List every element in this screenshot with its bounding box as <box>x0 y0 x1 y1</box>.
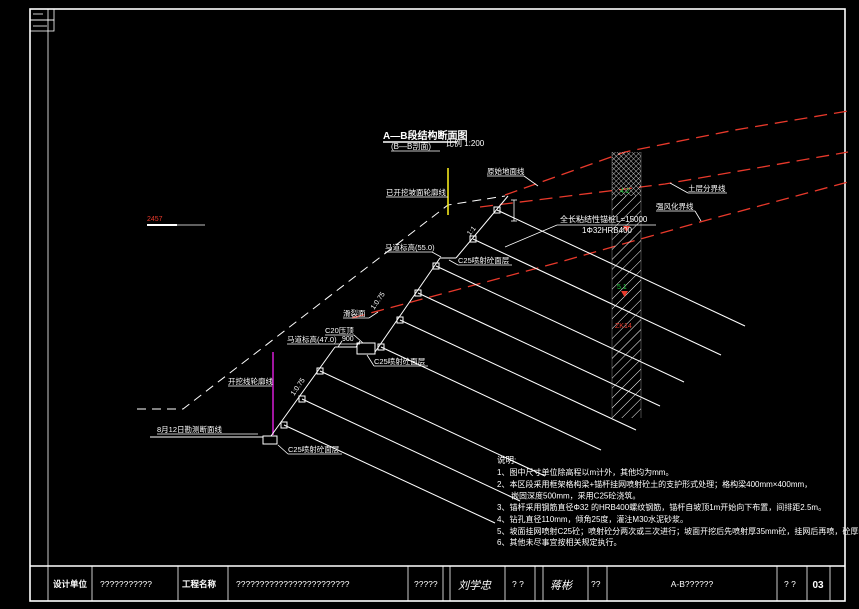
note-line: 5、坡面挂网喷射C25砼；喷射砼分两次或三次进行；坡面开挖后先喷射厚35mm砼，… <box>497 526 859 536</box>
drawing-title-cell: A-B?????? <box>671 579 714 589</box>
shotcrete-label-3: C25喷射砼面层 <box>288 444 340 454</box>
slip-surface-label: 滑裂面 <box>343 308 366 318</box>
survey-line-label: 8月12日勘测断面线 <box>157 424 223 434</box>
borehole-layer-mid-label: 5.1 <box>617 284 627 291</box>
excavation-line-label: 开挖线轮廓线 <box>228 376 273 386</box>
borehole-column: 4.2 5.1 ZK14 <box>612 152 641 418</box>
note-line: 1、图中尺寸单位除高程以m计外，其他均为mm。 <box>497 467 673 477</box>
sheet-number: 03 <box>812 580 824 591</box>
project-name-label: 工程名称 <box>182 579 217 589</box>
drawing-background <box>0 0 859 609</box>
c20-cap-label: C20压顶 <box>325 326 354 335</box>
dim-900-label: 900 <box>342 336 354 343</box>
check-cell-1: ? ? <box>512 579 524 589</box>
excavated-outline-label: 已开挖坡面轮廓线 <box>386 187 446 197</box>
berm-47-label: 马道标高(47.0) <box>287 334 337 344</box>
borehole-id-label: ZK14 <box>615 323 632 330</box>
notes-heading: 说明: <box>497 455 516 465</box>
shotcrete-label-1: C25喷射砼面层 <box>458 255 510 265</box>
anchor-spec-line2: 1Φ32HRB400 <box>582 226 633 235</box>
engineering-drawing: A—B段结构断面图 (B—B剖面) 比例 1:200 4.2 5.1 ZK14 <box>0 0 859 609</box>
soil-boundary-label: 土层分界线 <box>688 183 726 193</box>
check-cell-3: ? ? <box>784 579 796 589</box>
weathered-boundary-label: 强风化界线 <box>656 201 694 211</box>
scale-text: 比例 1:200 <box>446 138 485 148</box>
borehole-layer-top-label: 4.2 <box>620 188 630 195</box>
note-line: 2、本区段采用框架格构梁+锚杆挂网喷射砼土的支护形式处理；格构梁400mm×40… <box>497 479 812 489</box>
design-unit-value: ??????????? <box>100 579 152 589</box>
view-subtitle-text: (B—B剖面) <box>391 141 431 151</box>
check-cell-2: ?? <box>591 579 601 589</box>
berm-55-label: 马道标高(55.0) <box>385 242 435 252</box>
signature-1: 刘学忠 <box>458 579 492 592</box>
elevation-mark-value: 2457 <box>147 216 163 223</box>
stage-cell: ????? <box>414 579 438 589</box>
note-line: 嵌固深度500mm，采用C25砼浇筑。 <box>511 491 640 501</box>
signature-2: 蒋彬 <box>550 579 574 592</box>
note-line: 4、钻孔直径110mm，倾角25度，灌注M30水泥砂浆。 <box>497 514 688 524</box>
shotcrete-label-2: C25喷射砼面层 <box>374 356 426 366</box>
anchor-spec-line1: 全长粘结性锚桩L=15000 <box>560 214 648 224</box>
note-line: 6、其他未尽事宜按相关规定执行。 <box>497 537 621 547</box>
project-name-value: ???????????????????????? <box>236 579 350 589</box>
design-unit-label: 设计单位 <box>53 579 88 589</box>
note-line: 3、锚杆采用钢筋直径Φ32 的HRB400螺纹钢筋，锚杆自坡顶1m开始向下布置，… <box>497 502 826 512</box>
original-ground-label: 原始地面线 <box>487 166 525 176</box>
